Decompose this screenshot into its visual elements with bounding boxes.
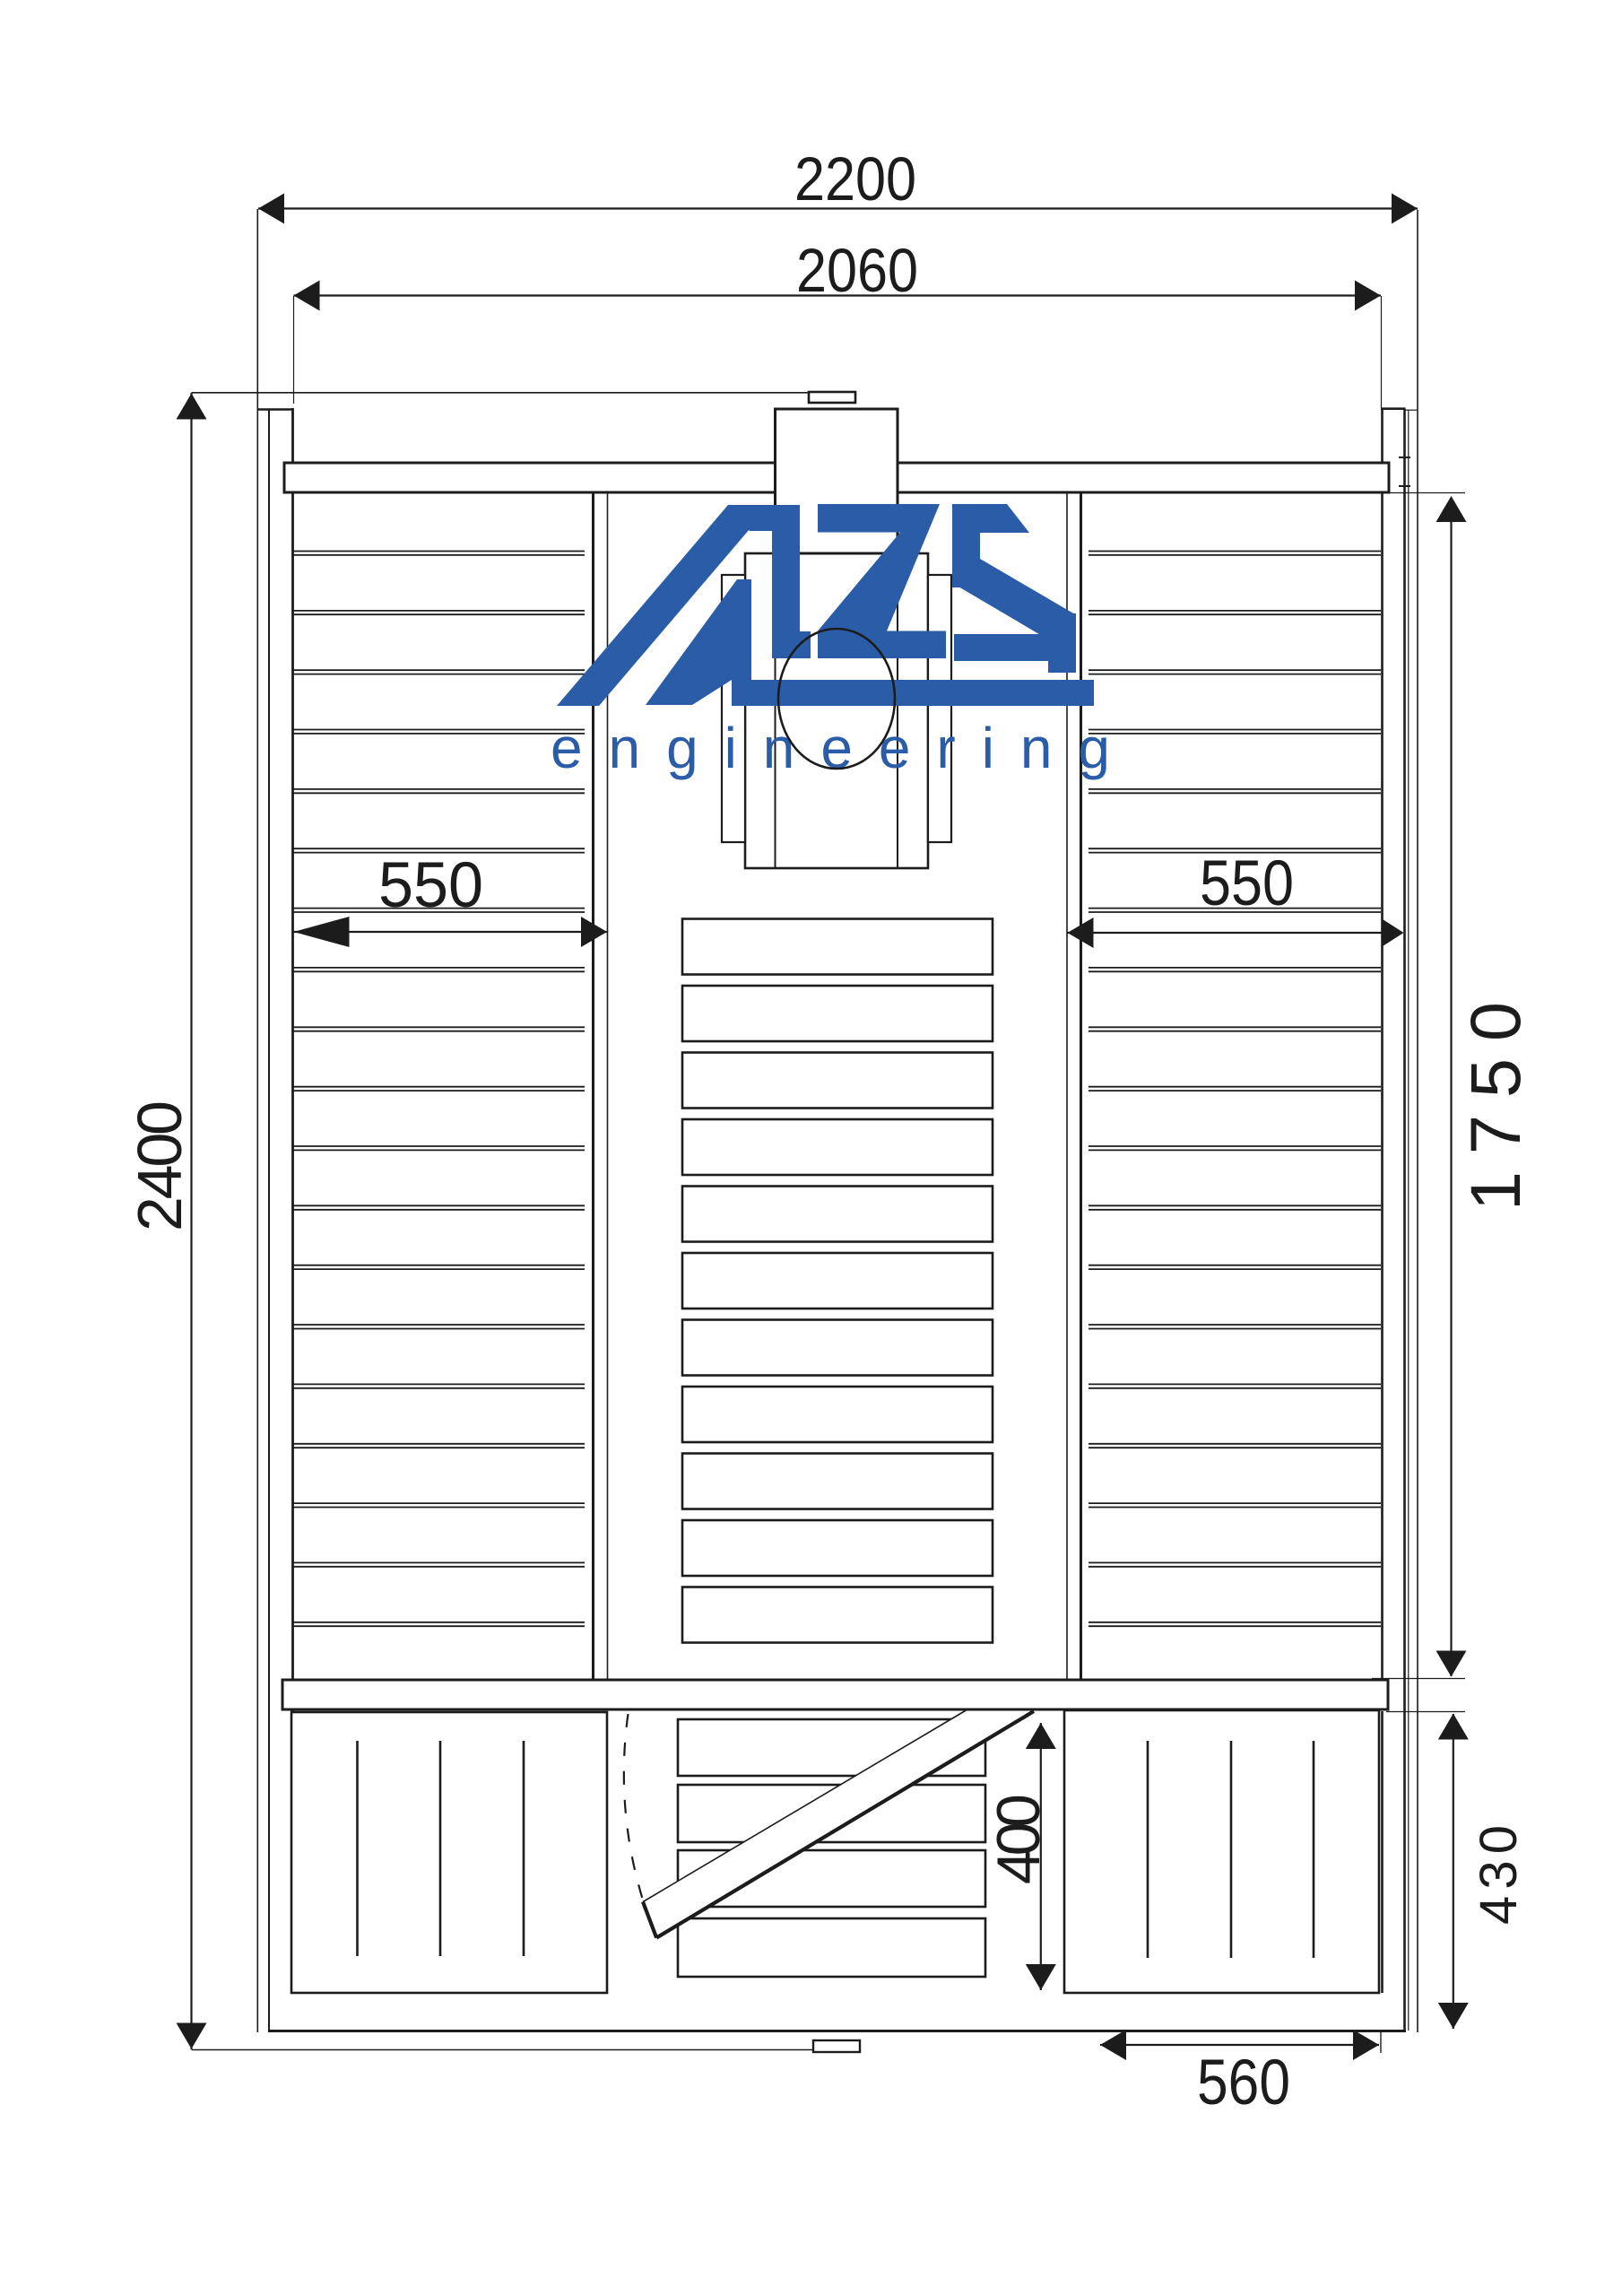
svg-text:2060: 2060 [796, 236, 918, 305]
svg-text:560: 560 [1197, 2048, 1290, 2118]
svg-text:550: 550 [1200, 848, 1294, 919]
svg-text:550: 550 [378, 850, 483, 921]
svg-text:430: 430 [1470, 1825, 1528, 1925]
svg-text:400: 400 [984, 1794, 1053, 1884]
svg-text:2200: 2200 [794, 144, 916, 213]
svg-text:engineering: engineering [551, 716, 1110, 780]
svg-text:2400: 2400 [125, 1100, 195, 1231]
